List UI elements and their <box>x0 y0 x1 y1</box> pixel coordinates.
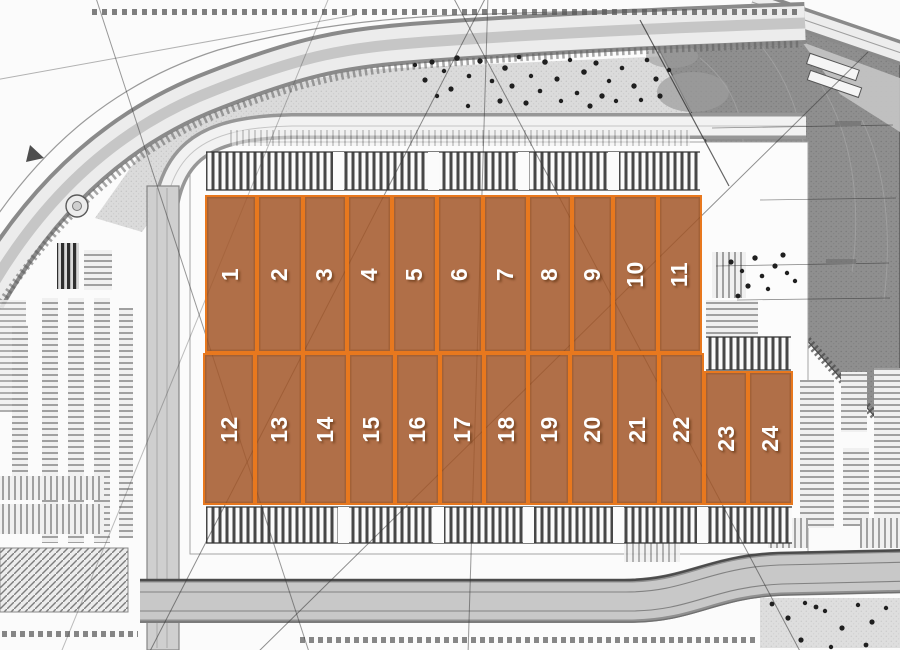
unit-17[interactable]: 17 <box>440 353 484 505</box>
unit-label: 23 <box>713 425 740 452</box>
unit-5[interactable]: 5 <box>392 195 437 353</box>
unit-23[interactable]: 23 <box>704 371 748 505</box>
unit-label: 16 <box>404 416 431 443</box>
unit-label: 6 <box>446 267 473 280</box>
unit-7[interactable]: 7 <box>483 195 528 353</box>
unit-14[interactable]: 14 <box>303 353 348 505</box>
unit-13[interactable]: 13 <box>255 353 303 505</box>
unit-20[interactable]: 20 <box>570 353 615 505</box>
unit-label: 5 <box>401 267 428 280</box>
unit-label: 4 <box>356 267 383 280</box>
unit-label: 2 <box>266 267 293 280</box>
unit-label: 10 <box>622 261 649 288</box>
unit-9[interactable]: 9 <box>572 195 613 353</box>
unit-label: 9 <box>579 267 606 280</box>
unit-1[interactable]: 1 <box>205 195 257 353</box>
unit-label: 14 <box>312 416 339 443</box>
unit-label: 20 <box>579 416 606 443</box>
unit-label: 7 <box>492 267 519 280</box>
unit-label: 8 <box>536 267 563 280</box>
unit-label: 24 <box>757 425 784 452</box>
unit-label: 19 <box>536 416 563 443</box>
unit-2[interactable]: 2 <box>257 195 303 353</box>
parking-hatch-lot <box>0 548 128 612</box>
unit-label: 11 <box>666 261 693 286</box>
unit-4[interactable]: 4 <box>347 195 392 353</box>
unit-22[interactable]: 22 <box>659 353 704 505</box>
unit-15[interactable]: 15 <box>348 353 395 505</box>
unit-label: 21 <box>624 416 651 443</box>
unit-label: 12 <box>216 416 243 443</box>
unit-24[interactable]: 24 <box>748 371 793 505</box>
unit-11[interactable]: 11 <box>658 195 702 353</box>
site-plan: 1 2 3 4 5 6 7 8 9 10 11 12 13 14 15 16 1… <box>0 0 900 650</box>
unit-8[interactable]: 8 <box>528 195 572 353</box>
unit-12[interactable]: 12 <box>203 353 255 505</box>
unit-label: 13 <box>266 416 293 443</box>
unit-label: 1 <box>217 267 244 280</box>
unit-6[interactable]: 6 <box>437 195 483 353</box>
unit-label: 15 <box>358 416 385 443</box>
unit-3[interactable]: 3 <box>303 195 347 353</box>
unit-label: 17 <box>449 416 476 443</box>
unit-label: 22 <box>668 416 695 443</box>
unit-label: 18 <box>493 416 520 443</box>
unit-19[interactable]: 19 <box>528 353 570 505</box>
unit-16[interactable]: 16 <box>395 353 440 505</box>
vegetation-bottom-right <box>760 598 900 649</box>
unit-21[interactable]: 21 <box>615 353 659 505</box>
unit-18[interactable]: 18 <box>484 353 528 505</box>
unit-10[interactable]: 10 <box>613 195 658 353</box>
unit-label: 3 <box>311 267 338 280</box>
